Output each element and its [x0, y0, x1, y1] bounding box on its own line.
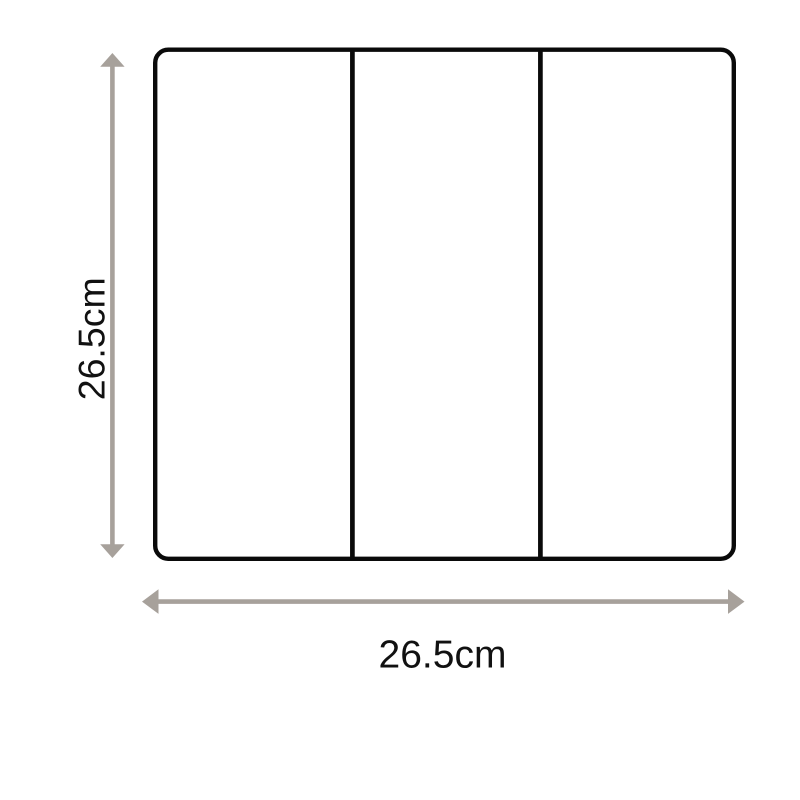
svg-text:26.5cm: 26.5cm [71, 277, 113, 400]
svg-text:26.5cm: 26.5cm [379, 634, 507, 677]
